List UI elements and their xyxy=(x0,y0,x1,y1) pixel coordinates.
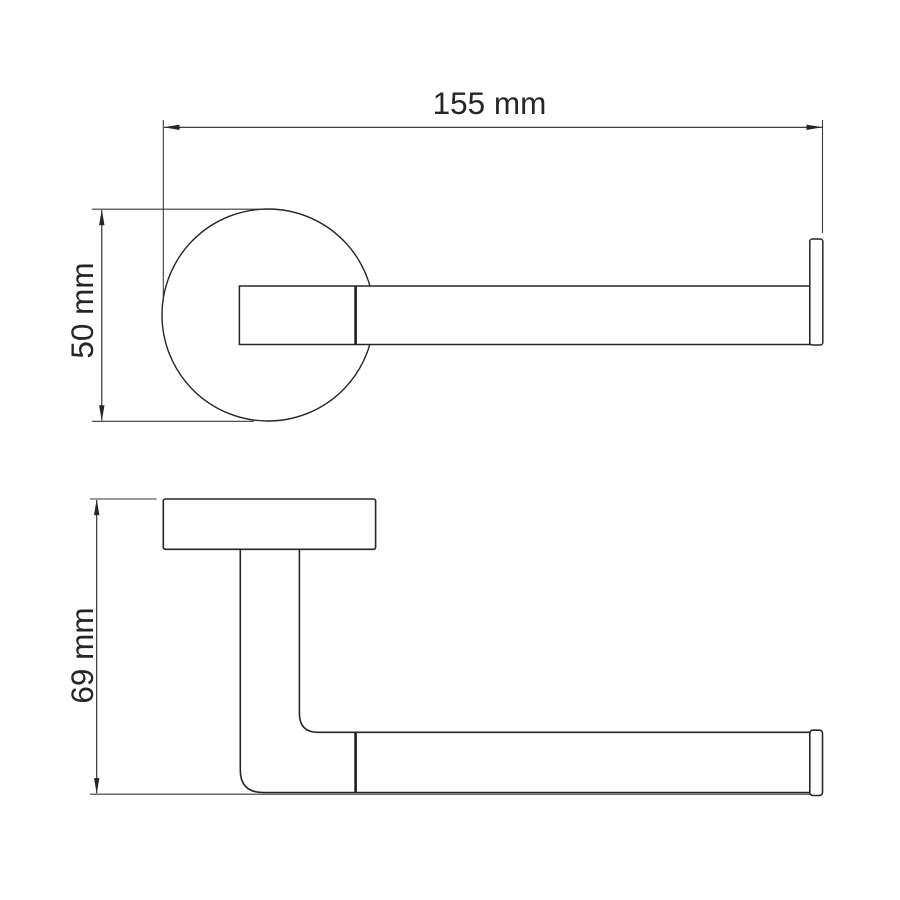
svg-text:69 mm: 69 mm xyxy=(64,607,100,703)
svg-text:155 mm: 155 mm xyxy=(433,85,547,121)
svg-text:50 mm: 50 mm xyxy=(64,262,100,358)
